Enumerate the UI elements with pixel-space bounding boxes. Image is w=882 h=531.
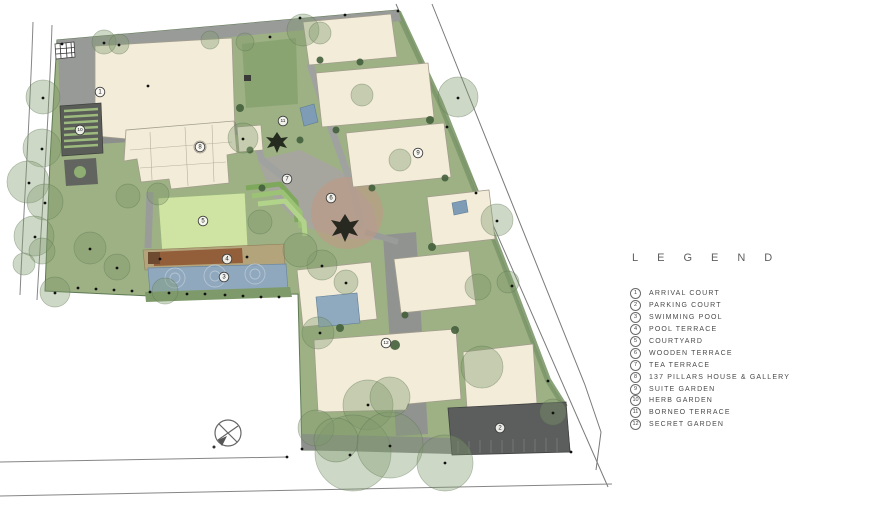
plan-marker-2: 2	[495, 423, 505, 433]
site-dot	[77, 287, 80, 290]
legend-panel: LEGEND 1 ARRIVAL COURT 2 PARKING COURT 3…	[630, 252, 860, 431]
legend-item: 4 POOL TERRACE	[630, 324, 860, 336]
site-dot	[446, 126, 449, 129]
plan-marker-10: 10	[75, 125, 85, 135]
legend-item-label: SWIMMING POOL	[649, 314, 723, 321]
plan-marker-7: 7	[282, 174, 292, 184]
legend-item-number: 11	[630, 407, 641, 418]
site-plan-svg: 123456789101112	[0, 0, 640, 526]
bottom-road-line-upper	[0, 457, 287, 462]
site-dot	[344, 14, 347, 17]
north-compass-icon	[213, 420, 242, 449]
plan-marker-6: 6	[326, 193, 336, 203]
site-dot	[286, 456, 289, 459]
legend-item-number: 9	[630, 384, 641, 395]
svg-text:10: 10	[77, 127, 83, 133]
site-dot	[444, 462, 447, 465]
legend-item-number: 10	[630, 395, 641, 406]
legend-item-number: 1	[630, 288, 641, 299]
plan-marker-9: 9	[413, 148, 423, 158]
tree-canopy	[201, 31, 219, 49]
legend-item-label: POOL TERRACE	[649, 326, 717, 333]
site-dot	[321, 265, 324, 268]
plan-marker-3: 3	[219, 272, 229, 282]
svg-text:11: 11	[281, 118, 286, 124]
site-dot	[496, 220, 499, 223]
legend-item: 7 TEA TERRACE	[630, 359, 860, 371]
plan-marker-5: 5	[198, 216, 208, 226]
legend-item-label: COURTYARD	[649, 338, 703, 345]
site-dot	[570, 451, 573, 454]
herb-garden-structure	[60, 103, 103, 186]
legend-item-label: PARKING COURT	[649, 302, 722, 309]
legend-title: LEGEND	[632, 252, 860, 264]
tree-canopy	[351, 84, 373, 106]
legend-item-number: 3	[630, 312, 641, 323]
site-dot	[95, 288, 98, 291]
legend-item: 3 SWIMMING POOL	[630, 312, 860, 324]
page: { "legend": { "title": "LEGEND", "items"…	[0, 0, 882, 526]
site-dot	[54, 292, 57, 295]
site-dot	[301, 448, 304, 451]
site-dot	[246, 256, 249, 259]
site-dot	[186, 293, 189, 296]
legend-item: 12 SECRET GARDEN	[630, 419, 860, 431]
site-dot	[397, 10, 400, 13]
tree-canopy	[147, 183, 169, 205]
site-dot	[475, 192, 478, 195]
legend-item: 1 ARRIVAL COURT	[630, 288, 860, 300]
legend-item: 2 PARKING COURT	[630, 300, 860, 312]
entry-gate-icon	[55, 42, 75, 59]
site-dot	[299, 17, 302, 20]
plan-marker-8: 8	[195, 142, 205, 152]
legend-item-label: TEA TERRACE	[649, 362, 710, 369]
site-dot	[34, 236, 37, 239]
legend-item-number: 8	[630, 372, 641, 383]
site-dot	[44, 202, 47, 205]
legend-item-number: 2	[630, 300, 641, 311]
site-dot	[349, 454, 352, 457]
svg-text:12: 12	[383, 340, 389, 346]
plan-marker-1: 1	[95, 87, 105, 97]
site-dot	[113, 289, 116, 292]
legend-item: 6 WOODEN TERRACE	[630, 347, 860, 359]
site-dot	[41, 148, 44, 151]
tree-canopy	[461, 346, 503, 388]
site-dot	[278, 296, 281, 299]
legend-item-number: 4	[630, 324, 641, 335]
site-dot	[116, 267, 119, 270]
site-dot	[367, 404, 370, 407]
site-dot	[28, 182, 31, 185]
site-dot	[457, 97, 460, 100]
tree-canopy	[314, 418, 358, 462]
site-dot	[42, 97, 45, 100]
pavilion-icon	[244, 75, 251, 81]
site-dot	[204, 293, 207, 296]
plan-marker-4: 4	[222, 254, 232, 264]
legend-item-number: 6	[630, 348, 641, 359]
pillars-house	[124, 121, 237, 189]
site-plan: 123456789101112	[0, 0, 640, 526]
legend-item: 9 SUITE GARDEN	[630, 383, 860, 395]
site-dot	[89, 248, 92, 251]
site-dot	[159, 258, 162, 261]
site-dot	[242, 295, 245, 298]
tree-canopy	[248, 210, 272, 234]
site-dot	[147, 85, 150, 88]
site-dot	[61, 43, 64, 46]
plan-marker-11: 11	[278, 116, 288, 126]
legend-item: 10 HERB GARDEN	[630, 395, 860, 407]
tree-canopy	[302, 317, 334, 349]
tree-canopy	[309, 22, 331, 44]
tree-canopy	[389, 149, 411, 171]
tree-canopy	[497, 271, 519, 293]
site-dot	[118, 44, 121, 47]
site-dot	[168, 292, 171, 295]
legend-item: 11 BORNEO TERRACE	[630, 407, 860, 419]
site-dot	[511, 285, 514, 288]
pond-east	[452, 200, 468, 215]
site-dot	[319, 332, 322, 335]
legend-item-label: WOODEN TERRACE	[649, 350, 733, 357]
tree-canopy	[465, 274, 491, 300]
site-dot	[389, 445, 392, 448]
tree-canopy	[236, 33, 254, 51]
legend-item-label: ARRIVAL COURT	[649, 290, 720, 297]
site-dot	[242, 138, 245, 141]
legend-item: 5 COURTYARD	[630, 336, 860, 348]
site-dot	[224, 294, 227, 297]
legend-item-label: 137 PILLARS HOUSE & GALLERY	[649, 374, 790, 381]
plan-marker-12: 12	[381, 338, 391, 348]
site-dot	[345, 282, 348, 285]
site-dot	[547, 380, 550, 383]
tree-canopy	[152, 278, 178, 304]
legend-item-label: SECRET GARDEN	[649, 421, 724, 428]
tree-canopy	[283, 233, 317, 267]
legend-item-label: HERB GARDEN	[649, 397, 713, 404]
site-dot	[149, 291, 152, 294]
deck-planter	[148, 252, 160, 264]
tree-canopy	[116, 184, 140, 208]
tree-canopy	[13, 253, 35, 275]
site-dot	[260, 296, 263, 299]
tree-canopy	[370, 377, 410, 417]
legend-item-number: 12	[630, 419, 641, 430]
legend-item: 8 137 PILLARS HOUSE & GALLERY	[630, 371, 860, 383]
villa-f	[394, 251, 476, 313]
legend-item-number: 7	[630, 360, 641, 371]
legend-item-number: 5	[630, 336, 641, 347]
bottom-road-line-lower	[0, 484, 612, 496]
site-dot	[103, 42, 106, 45]
site-dot	[552, 412, 555, 415]
legend-item-label: BORNEO TERRACE	[649, 409, 731, 416]
site-dot	[131, 290, 134, 293]
villa-b	[316, 63, 434, 127]
site-dot	[269, 36, 272, 39]
legend-item-label: SUITE GARDEN	[649, 386, 715, 393]
legend-list: 1 ARRIVAL COURT 2 PARKING COURT 3 SWIMMI…	[630, 288, 860, 431]
